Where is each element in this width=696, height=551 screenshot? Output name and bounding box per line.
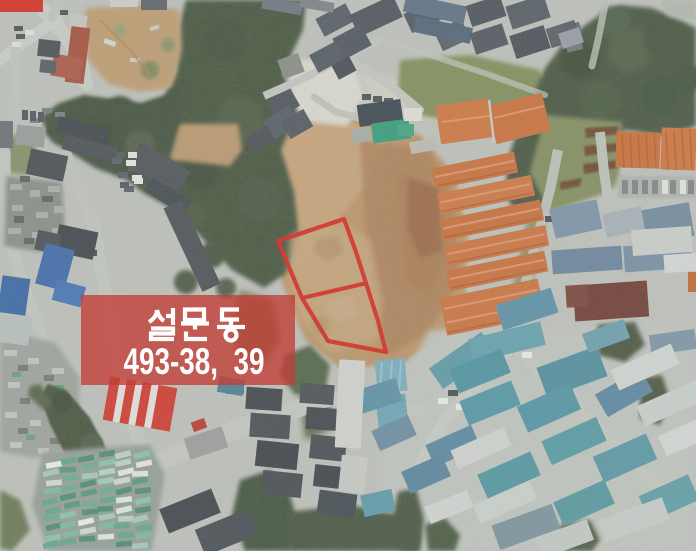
svg-text:493-38, 39: 493-38, 39 xyxy=(124,341,265,382)
